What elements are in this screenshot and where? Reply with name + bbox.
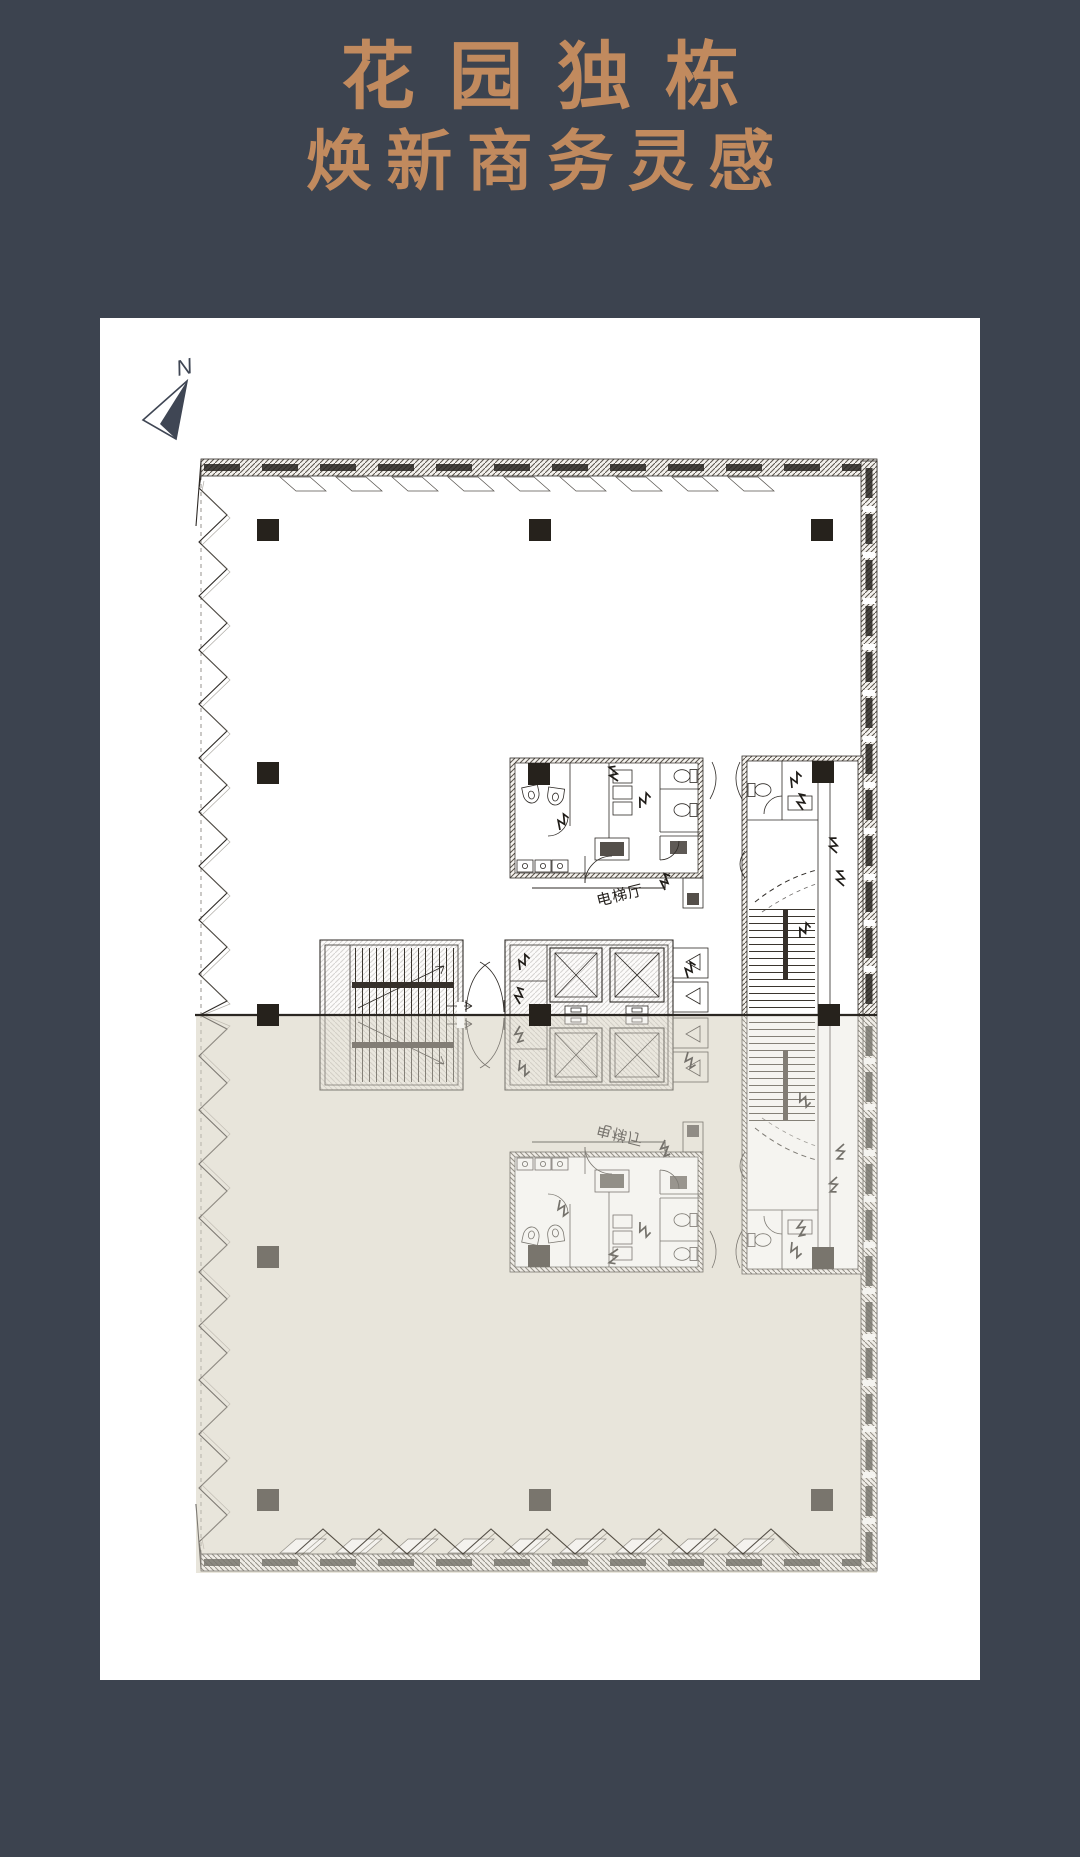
elevator-bank xyxy=(505,940,708,1015)
right-core-block xyxy=(739,756,863,1015)
compass-n-label: N xyxy=(174,353,195,381)
window-panel-row xyxy=(280,477,774,491)
stair-core-left xyxy=(320,940,472,1015)
page-background: 花园独栋 焕新商务灵感 xyxy=(0,0,1080,1857)
left-zigzag-facade xyxy=(196,461,230,1015)
reflection-wash xyxy=(196,1015,877,1573)
headline-line-1: 花园独栋 xyxy=(0,40,1080,114)
elevator-hall-label: 电梯厅 xyxy=(595,882,646,910)
plan-upper-half: 电梯厅 xyxy=(196,459,877,1015)
top-wall xyxy=(201,459,877,491)
door-arcs xyxy=(710,762,742,799)
floor-plan: 电梯厅 xyxy=(100,318,980,1680)
headline-line-2: 焕新商务灵感 xyxy=(0,128,1080,194)
columns-upper xyxy=(257,519,834,785)
swing-doors xyxy=(466,962,504,1012)
floor-plan-card: 电梯厅 xyxy=(100,318,980,1680)
north-arrow-icon: N xyxy=(143,353,195,439)
